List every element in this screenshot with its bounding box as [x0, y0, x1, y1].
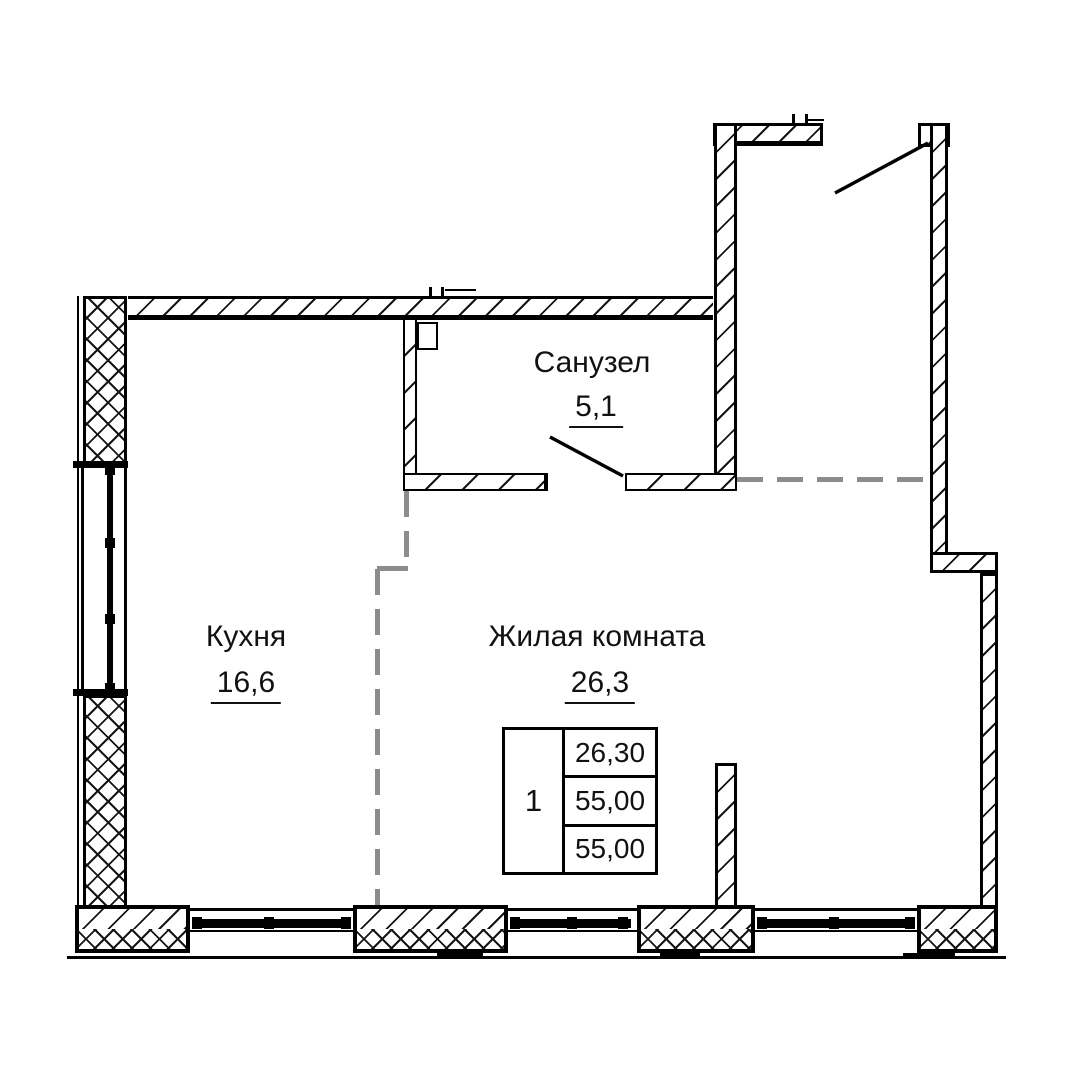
floor-plan: Санузел 5,1 Кухня 16,6 Жилая комната 26,… — [0, 0, 1080, 1080]
room-area-living-room: 26,3 — [565, 666, 635, 704]
room-label-living-room: Жилая комната — [489, 620, 706, 654]
summary-table: 1 26,30 55,00 55,00 — [502, 727, 658, 875]
room-label-bathroom: Санузел — [534, 346, 651, 380]
room-area-bathroom: 5,1 — [569, 390, 623, 428]
door-swing-bathroom — [550, 437, 623, 476]
door-swing-layer — [0, 0, 1080, 1080]
room-area-kitchen: 16,6 — [211, 666, 281, 704]
table-values-column: 26,30 55,00 55,00 — [565, 730, 655, 872]
room-label-kitchen: Кухня — [206, 620, 286, 654]
door-swing-entry — [835, 143, 928, 193]
table-cell-living-area: 26,30 — [565, 730, 655, 775]
table-cell-total-area: 55,00 — [565, 775, 655, 823]
table-cell-rooms-count: 1 — [505, 730, 565, 872]
table-cell-overall-area: 55,00 — [565, 824, 655, 872]
